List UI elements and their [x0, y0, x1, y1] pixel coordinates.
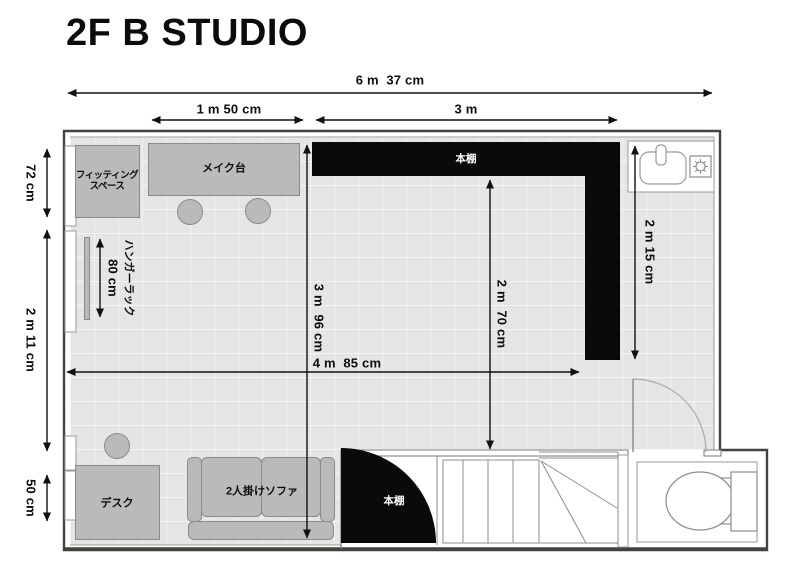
floor-plan: 2F B STUDIO 6 m 37 cm 1 m 50 cm 3 m 72 c…	[0, 0, 800, 575]
sofa-label: 2人掛けソファ	[226, 486, 298, 499]
fitting-space-label: フィッティング スペース	[76, 171, 138, 193]
dim-right-width-label: 3 m	[454, 103, 477, 118]
dim-right-depth-label: 2 m 15 cm	[642, 220, 657, 285]
dim-wall-bottom-label: 50 cm	[23, 479, 38, 517]
dim-total-width-label: 6 m 37 cm	[356, 74, 425, 89]
dim-inner-depth-label: 2 m 70 cm	[494, 280, 509, 349]
dim-inner-width-label: 4 m 85 cm	[313, 357, 382, 372]
bookshelf-top-label: 本棚	[456, 153, 477, 165]
bookshelf-corner-label: 本棚	[384, 495, 405, 507]
dim-wall-top-label: 72 cm	[23, 164, 38, 202]
hanger-rack-label: ハンガーラック	[122, 240, 135, 317]
dim-wall-middle-label: 2 m 11 cm	[23, 308, 38, 372]
dim-left-width-label: 1 m 50 cm	[197, 103, 262, 118]
dim-room-depth-label: 3 m 96 cm	[311, 284, 326, 353]
desk-label: デスク	[101, 498, 134, 511]
makeup-table-label: メイク台	[202, 163, 246, 176]
page-title: 2F B STUDIO	[66, 12, 308, 55]
dim-hanger-label: 80 cm	[105, 259, 120, 297]
